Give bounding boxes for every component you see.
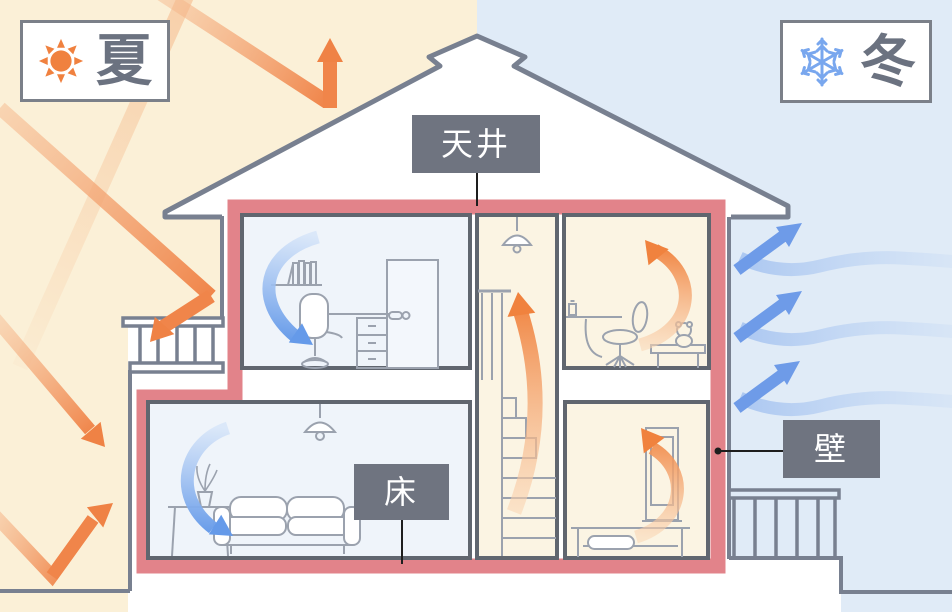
summer-label: 夏 (96, 33, 152, 89)
wall-callout: 壁 (783, 420, 880, 478)
ceiling-callout: 天井 (412, 115, 540, 173)
stair-hall (477, 215, 557, 558)
summer-legend: 夏 (20, 20, 170, 102)
kids-room (564, 215, 709, 368)
bedroom (565, 402, 708, 558)
winter-label: 冬 (860, 34, 916, 90)
insulation-diagram: 夏 冬 天井 床 壁 (0, 0, 952, 612)
floor-callout: 床 (354, 464, 449, 520)
sofa-icon (214, 497, 360, 554)
snowflake-icon (796, 36, 848, 88)
study-room (242, 215, 470, 368)
door-icon (387, 260, 438, 368)
winter-legend: 冬 (780, 20, 932, 103)
sun-icon (38, 38, 84, 84)
